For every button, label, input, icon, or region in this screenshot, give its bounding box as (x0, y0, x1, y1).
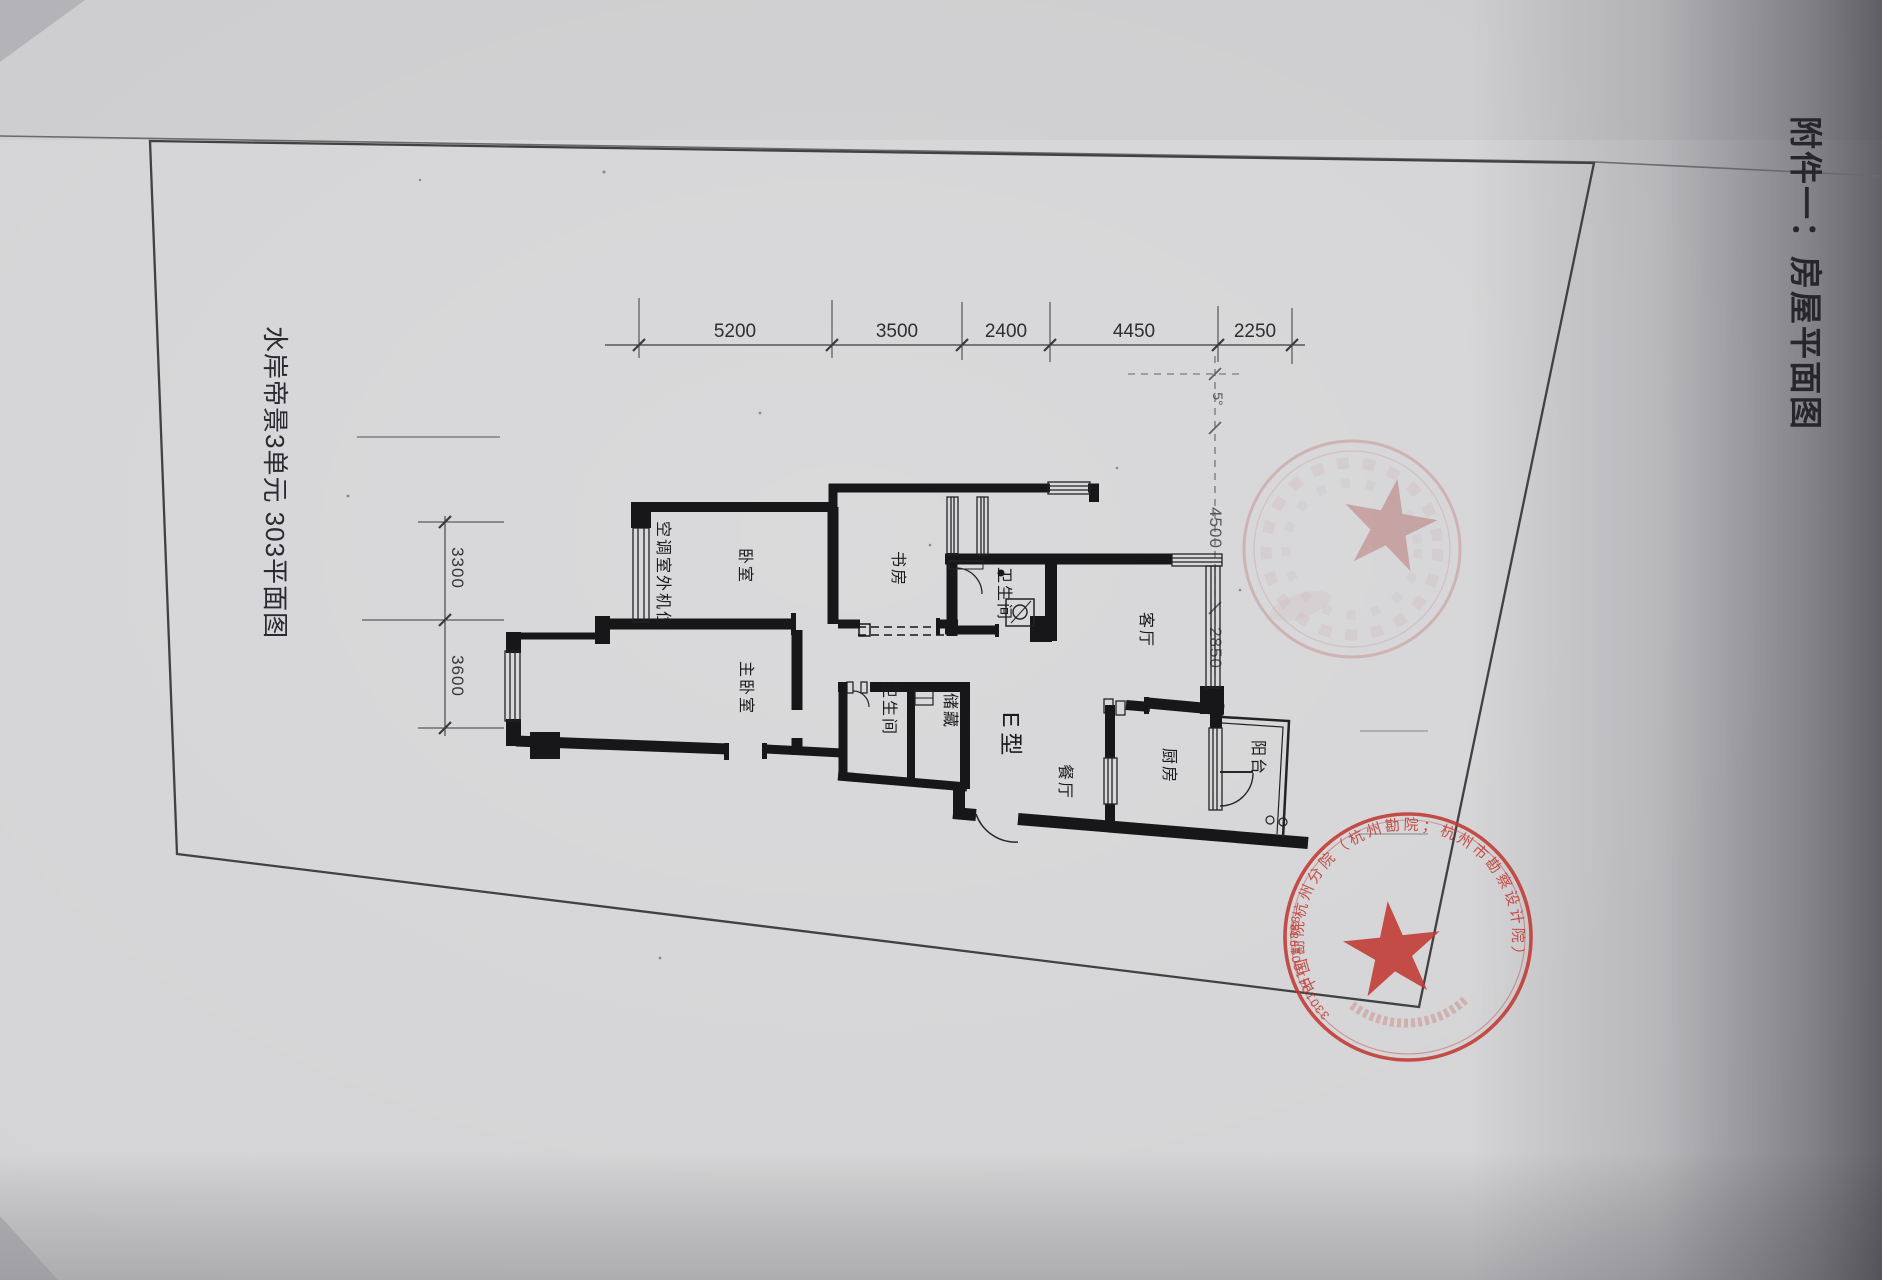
label-master-bedroom: 主卧室 (737, 661, 755, 715)
dim-top-5200: 5200 (714, 321, 756, 342)
label-dining-room: 餐厅 (1056, 764, 1074, 800)
paper-background (0, 0, 1882, 1280)
label-study: 书房 (889, 551, 907, 587)
dim-left-3300: 3300 (448, 547, 467, 589)
label-bathroom2: 卫生间 (880, 682, 898, 736)
label-unit-type: E型 (998, 712, 1024, 760)
label-living-room: 客厅 (1137, 612, 1155, 648)
dim-top-2400: 2400 (985, 321, 1027, 342)
scanned-floorplan-page: 水岸帝景3单元 303平面图 附件一：房屋平面图 5200 3500 2400 … (0, 0, 1882, 1280)
dim-top-4450: 4450 (1113, 321, 1155, 342)
attachment-title: 附件一：房屋平面图 (1787, 116, 1824, 431)
dim-left-3600: 3600 (448, 655, 467, 697)
dim-top-2250: 2250 (1234, 321, 1276, 342)
label-storage: 储藏 (941, 693, 959, 729)
label-bedroom: 卧室 (736, 548, 754, 584)
dim-right-5: 5° (1210, 392, 1226, 405)
dim-right-4500: 4500 (1206, 507, 1225, 549)
plan-title: 水岸帝景3单元 303平面图 (260, 326, 290, 639)
label-ac-unit: 空调室外机位 (654, 521, 672, 629)
label-kitchen: 厨房 (1160, 748, 1178, 784)
label-bathroom1: 卫生间 (995, 567, 1013, 621)
dim-top-3500: 3500 (876, 321, 918, 342)
label-balcony: 阳台 (1249, 740, 1267, 776)
